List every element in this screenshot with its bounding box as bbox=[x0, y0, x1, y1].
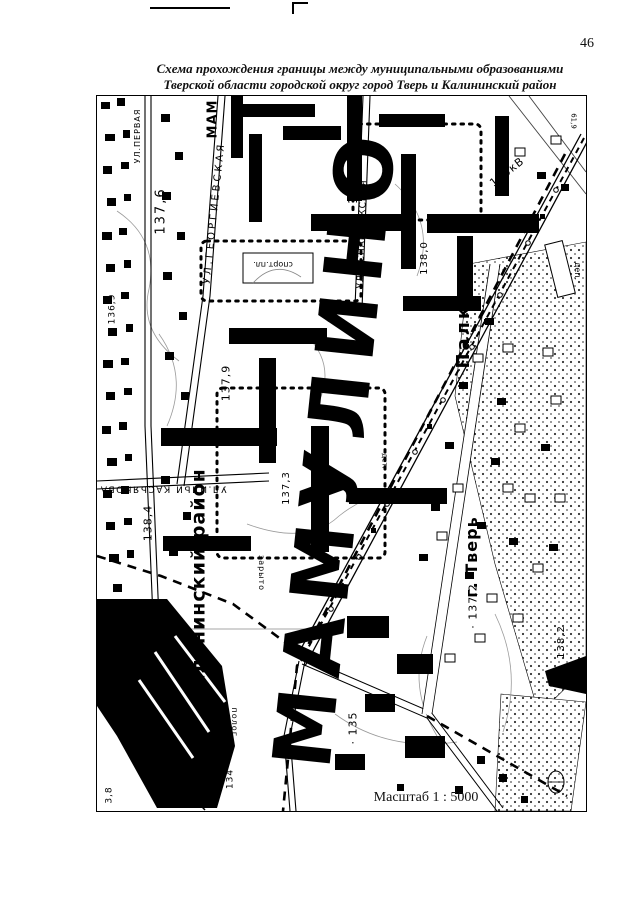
stray-scan-mark bbox=[150, 7, 230, 9]
page-number: 46 bbox=[580, 36, 594, 52]
stray-scan-mark bbox=[292, 2, 308, 4]
scale-label: Масштаб 1 : 5000 bbox=[374, 790, 479, 806]
houses-left-strip bbox=[101, 98, 191, 592]
sport-ground-area bbox=[243, 253, 313, 283]
document-title: Схема прохождения границы между муниципа… bbox=[100, 61, 620, 94]
dark-block-bottom-left bbox=[97, 599, 235, 810]
document-page: 46 Схема прохождения границы между муниц… bbox=[0, 0, 640, 905]
title-line-2: Тверской области городской округ город Т… bbox=[100, 77, 620, 93]
title-line-1: Схема прохождения границы между муниципа… bbox=[100, 61, 620, 77]
map-frame: МАМУЛИНО УЛ.ПЕРВАЯУЛ.ГЕОРГИЕВСКАЯУЛ.ОСНА… bbox=[96, 95, 587, 812]
